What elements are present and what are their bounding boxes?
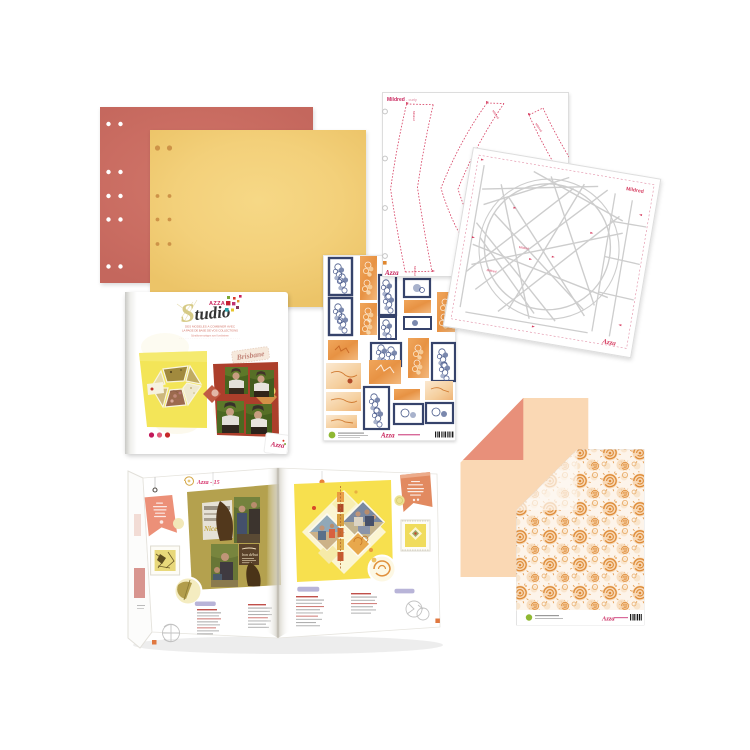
svg-text:S: S [179, 298, 195, 328]
svg-text:Mildred: Mildred [519, 245, 530, 251]
svg-text:Mildred: Mildred [413, 266, 417, 276]
svg-text:bon début: bon début [242, 552, 259, 557]
svg-text:······························: ·································· [179, 338, 240, 341]
svg-text:AZZA: AZZA [209, 301, 225, 307]
svg-text:Mildred: Mildred [491, 109, 500, 120]
svg-text:Azza: Azza [384, 269, 399, 277]
svg-text:Mildred: Mildred [486, 268, 497, 274]
svg-text:Mildred: Mildred [387, 97, 405, 103]
svg-text:Nice: Nice [203, 525, 217, 533]
svg-text:Azza: Azza [601, 616, 615, 623]
svg-text:Azza - 15: Azza - 15 [196, 480, 220, 486]
svg-text:LA PAGE DE BASE DE VOS COLLECT: LA PAGE DE BASE DE VOS COLLECTIONS [182, 328, 238, 332]
svg-text:Mildred: Mildred [626, 186, 645, 195]
svg-text:Azza: Azza [380, 432, 395, 440]
svg-text:Mildred: Mildred [534, 122, 543, 133]
svg-text:Azza: Azza [601, 337, 617, 347]
svg-text:- curly: - curly [406, 97, 417, 102]
svg-text:Mildred: Mildred [412, 111, 416, 121]
